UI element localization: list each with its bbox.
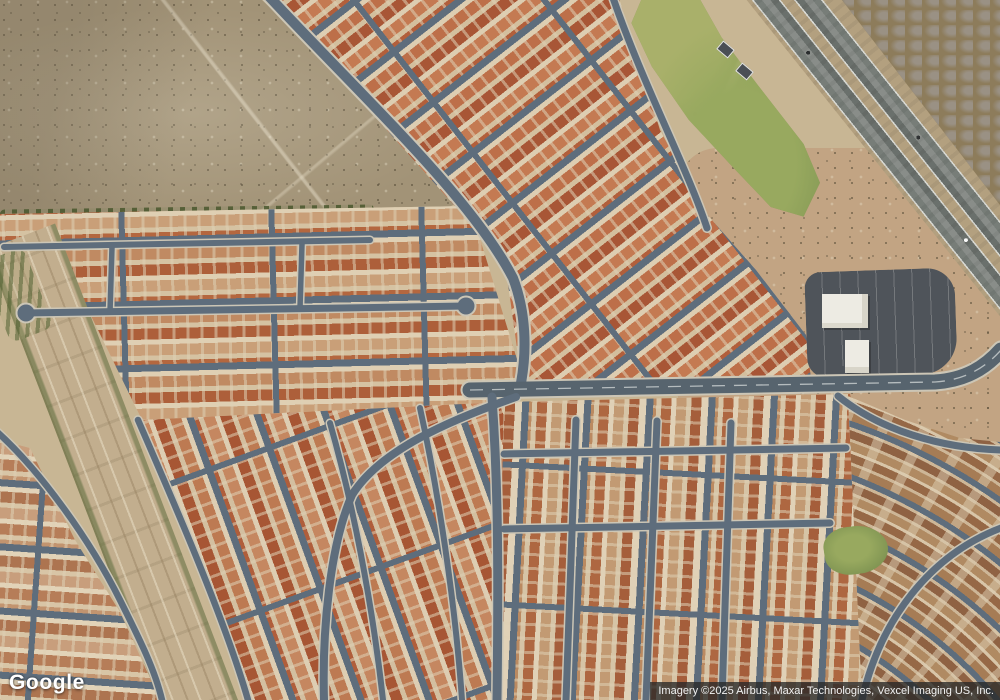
- residential-grid-south: [495, 385, 875, 700]
- satellite-map-canvas[interactable]: Google Imagery ©2025 Airbus, Maxar Techn…: [0, 0, 1000, 700]
- housing-pattern: [495, 385, 875, 700]
- attribution-bar: Imagery ©2025 Airbus, Maxar Technologies…: [650, 682, 1000, 700]
- attribution-text: Imagery ©2025 Airbus, Maxar Technologies…: [658, 685, 994, 697]
- google-logo[interactable]: Google: [9, 671, 85, 695]
- commercial-building: [822, 294, 868, 328]
- commercial-building-annex: [845, 340, 869, 373]
